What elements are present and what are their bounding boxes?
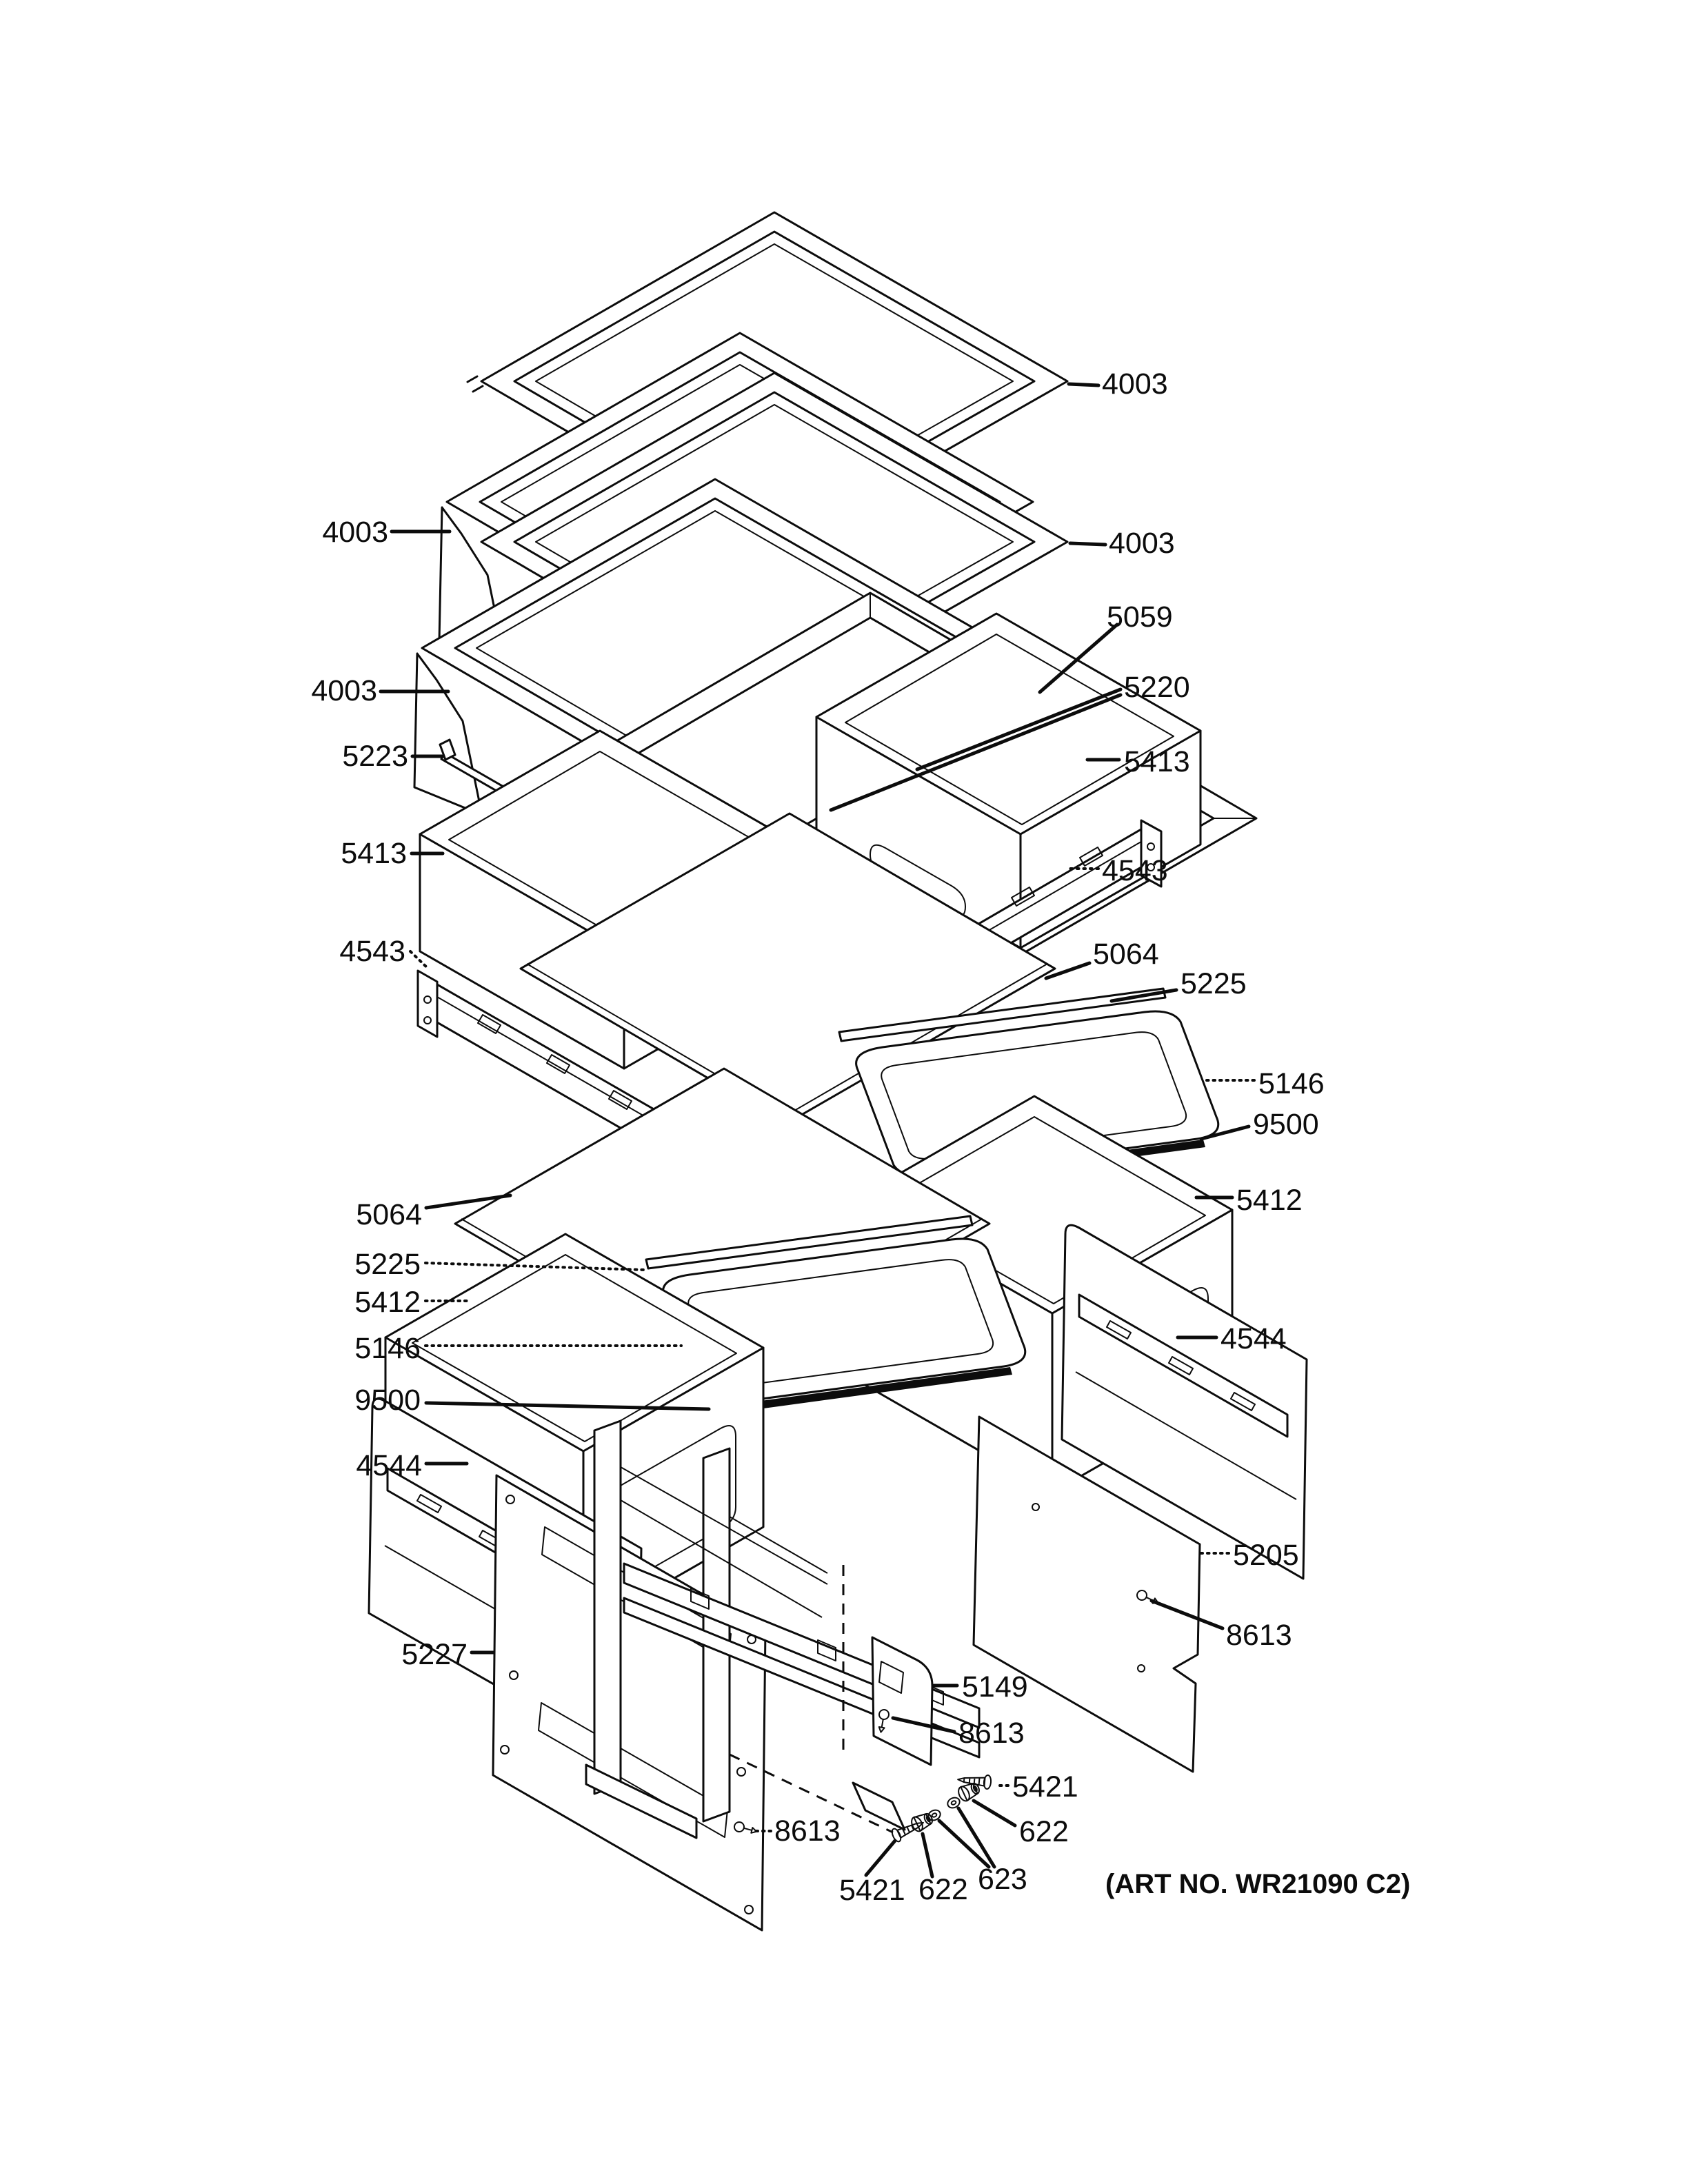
part-label-5205: 5205 [1233, 1539, 1299, 1572]
part-label-5421-b: 5421 [839, 1874, 905, 1907]
part-label-8613-r: 8613 [1226, 1619, 1292, 1652]
support-bracket [872, 1637, 932, 1765]
part-callout-5205: 5205 [1200, 1539, 1299, 1572]
part-label-5412-r: 5412 [1236, 1184, 1303, 1217]
part-callout-4543-l: 4543 [339, 935, 429, 969]
part-label-5412-l: 5412 [354, 1286, 421, 1319]
part-label-5059: 5059 [1107, 600, 1173, 634]
leader-line-623 [958, 1808, 994, 1867]
leader-line-622-b [923, 1834, 932, 1877]
parts-diagram-page: (ART NO. WR21090 C2) 4003400340035059522… [0, 0, 1688, 2184]
part-callout-4003-r2: 4003 [1070, 527, 1175, 560]
part-label-4543-r: 4543 [1102, 854, 1168, 887]
part-label-4003-l2: 4003 [311, 674, 377, 707]
part-label-5413-r: 5413 [1124, 745, 1190, 778]
part-label-4003-r1: 4003 [1102, 367, 1168, 401]
part-label-5225-r: 5225 [1180, 967, 1247, 1000]
part-label-5064-l: 5064 [356, 1198, 422, 1231]
leader-line-622-r [974, 1801, 1015, 1826]
part-label-5421-r: 5421 [1012, 1770, 1078, 1803]
part-callout-4003-r1: 4003 [1069, 367, 1168, 401]
part-label-5064-r: 5064 [1093, 938, 1159, 971]
leader-line-4003-r2 [1070, 543, 1105, 545]
part-callout-5064-r: 5064 [1046, 938, 1159, 978]
leader-line-4003-r1 [1069, 384, 1098, 385]
part-label-622-r: 622 [1019, 1815, 1069, 1848]
part-label-622-b: 622 [918, 1873, 968, 1906]
leader-line-5421-b [866, 1841, 895, 1875]
part-callout-5225-r: 5225 [1112, 967, 1247, 1001]
part-label-5146-r: 5146 [1258, 1067, 1325, 1100]
part-callout-622-r: 622 [974, 1801, 1069, 1848]
part-label-5413-l: 5413 [341, 837, 407, 870]
part-label-5223: 5223 [342, 740, 408, 773]
part-callout-5421-r: 5421 [997, 1770, 1078, 1803]
part-label-4544-r: 4544 [1220, 1322, 1287, 1355]
part-label-4003-r2: 4003 [1109, 527, 1175, 560]
part-label-8613-m: 8613 [958, 1717, 1025, 1750]
diagram-canvas: (ART NO. WR21090 C2) 4003400340035059522… [0, 0, 1688, 2184]
part-callout-5146-r: 5146 [1205, 1067, 1325, 1100]
part-callout-5421-b: 5421 [839, 1841, 905, 1907]
part-label-9500-l: 9500 [354, 1384, 421, 1417]
part-label-4003-l1: 4003 [322, 516, 388, 549]
part-label-5146-l: 5146 [354, 1332, 421, 1365]
part-label-8613-b: 8613 [774, 1814, 841, 1848]
part-label-5227: 5227 [401, 1638, 468, 1671]
part-label-5149: 5149 [962, 1670, 1028, 1703]
part-label-5225-l: 5225 [354, 1248, 421, 1281]
part-label-9500-r: 9500 [1253, 1108, 1319, 1141]
part-label-4543-l: 4543 [339, 935, 405, 968]
part-label-4544-l: 4544 [356, 1449, 422, 1482]
part-callout-8613-b: 8613 [753, 1814, 841, 1848]
part-callout-4003-l1: 4003 [322, 516, 450, 549]
art-number: (ART NO. WR21090 C2) [1105, 1869, 1410, 1899]
part-label-623: 623 [978, 1863, 1027, 1896]
part-label-5220: 5220 [1124, 671, 1190, 704]
part-callout-622-b: 622 [918, 1834, 968, 1906]
